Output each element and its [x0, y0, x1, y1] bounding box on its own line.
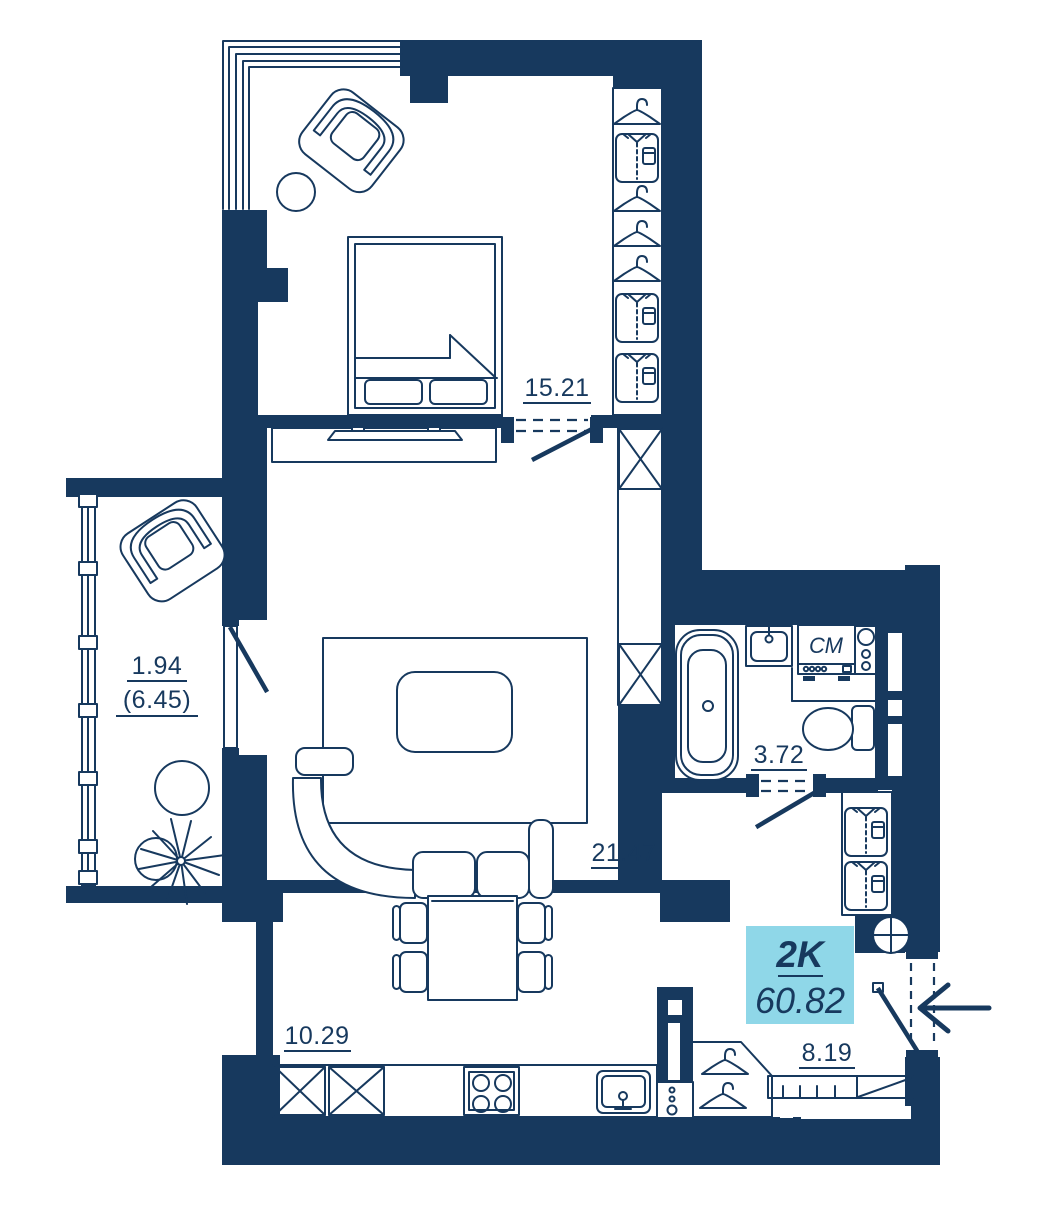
door-leaf — [758, 793, 814, 826]
kitchen-counter — [273, 1065, 657, 1117]
bedroom — [223, 41, 662, 459]
balcony-armchair — [114, 494, 230, 607]
pillow — [430, 380, 487, 404]
hallway-wardrobe — [842, 792, 892, 915]
shirt-icon — [845, 862, 887, 910]
tv — [328, 431, 462, 440]
coffee-table — [397, 672, 512, 752]
door-leaf — [534, 429, 592, 459]
hanger-icon — [702, 1049, 748, 1074]
bedroom-door — [501, 417, 603, 459]
bathroom: СМ — [676, 622, 876, 826]
balcony-area-full-label: (6.45) — [123, 686, 191, 714]
bedroom-area-label: 15.21 — [524, 374, 589, 402]
chair — [518, 903, 552, 943]
bathroom-door — [746, 774, 826, 826]
bedroom-side-table — [277, 173, 315, 211]
bed — [348, 237, 502, 415]
balcony-table — [155, 761, 209, 815]
coat-rack — [693, 1042, 772, 1117]
living-room — [272, 427, 662, 898]
vent-cross-icon — [873, 917, 909, 953]
kitchen-area-label: 10.29 — [284, 1022, 349, 1050]
tall-cabinet-dots — [657, 1082, 693, 1118]
unit-area-badge: 2K 60.82 — [746, 926, 854, 1024]
floor-plan-page: СМ — [0, 0, 1041, 1200]
shirt-icon — [845, 808, 887, 856]
living-area-label: 21.47 — [591, 839, 656, 867]
bathroom-area-label: 3.72 — [754, 741, 805, 769]
shirt-icon — [616, 294, 658, 342]
washing-machine: СМ — [798, 625, 855, 681]
chair — [393, 903, 427, 943]
balcony-door — [222, 616, 266, 758]
hanger-icon — [700, 1083, 746, 1108]
shirt-icon — [616, 134, 658, 182]
tv-console — [272, 427, 496, 462]
shirt-icon — [616, 354, 658, 402]
entrance-door — [873, 948, 989, 1061]
bathtub — [676, 630, 738, 780]
floor-plan: СМ — [0, 0, 1041, 1200]
stove — [464, 1067, 519, 1115]
bedroom-wardrobe — [613, 88, 662, 415]
hallway-area-label: 8.19 — [802, 1039, 853, 1067]
dining-table — [428, 896, 517, 1000]
chair — [518, 952, 552, 992]
unit-type-label: 2K — [775, 934, 826, 975]
kitchen-sink — [597, 1071, 650, 1113]
washing-machine-label: СМ — [809, 633, 844, 658]
chair — [393, 952, 427, 992]
balcony-area-label: 1.94 — [132, 652, 183, 680]
entrance-arrow-icon — [920, 985, 989, 1031]
shoe-bench — [768, 1076, 913, 1098]
towel-dryer — [855, 626, 876, 674]
duct-column — [618, 428, 662, 705]
kitchen — [273, 896, 693, 1118]
pillow — [365, 380, 422, 404]
balcony-glazing — [79, 494, 97, 886]
bathroom-sink — [746, 622, 792, 666]
total-area-label: 60.82 — [755, 980, 845, 1021]
